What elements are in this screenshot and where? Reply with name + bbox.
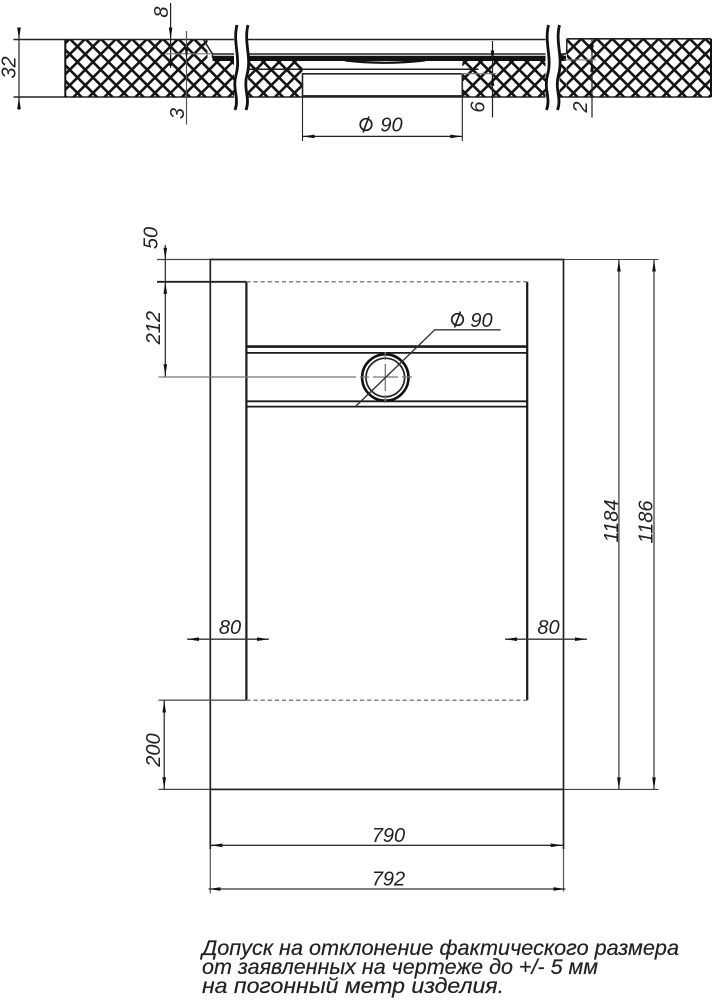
svg-text:90: 90: [470, 310, 492, 332]
svg-text:1186: 1186: [636, 500, 658, 544]
svg-text:212: 212: [143, 311, 165, 345]
svg-text:792: 792: [372, 869, 405, 891]
svg-text:90: 90: [380, 115, 402, 137]
svg-text:32: 32: [0, 56, 21, 78]
svg-text:2: 2: [570, 101, 592, 113]
svg-text:200: 200: [143, 733, 165, 767]
svg-text:3: 3: [167, 108, 189, 119]
svg-text:6: 6: [468, 101, 490, 113]
svg-text:80: 80: [537, 617, 559, 639]
svg-text:1184: 1184: [601, 499, 623, 542]
svg-text:80: 80: [219, 617, 241, 639]
svg-text:8: 8: [151, 6, 173, 17]
svg-text:50: 50: [141, 227, 163, 249]
svg-text:на погонный метр изделия.: на погонный метр изделия.: [202, 975, 504, 998]
svg-text:790: 790: [372, 825, 405, 847]
